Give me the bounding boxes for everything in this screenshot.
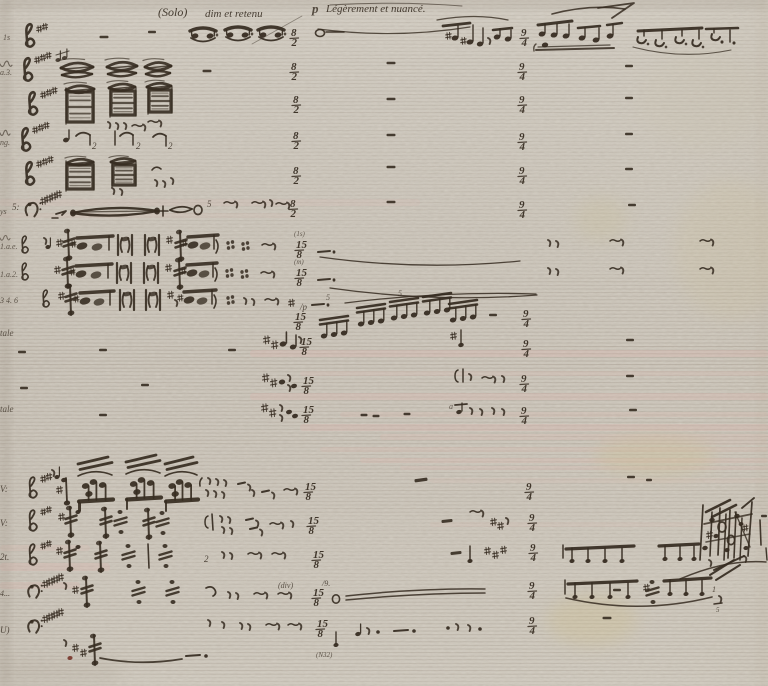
svg-text:p: p — [311, 1, 319, 16]
svg-text:5:: 5: — [12, 202, 20, 212]
svg-text:dim et retenu: dim et retenu — [205, 8, 263, 20]
svg-text:(m): (m) — [294, 258, 304, 266]
svg-text:3 4. 6: 3 4. 6 — [0, 296, 18, 305]
svg-text:ys: ys — [0, 207, 7, 216]
svg-text:2: 2 — [204, 554, 209, 564]
svg-text:2t.: 2t. — [0, 552, 9, 562]
svg-text:(N32): (N32) — [316, 651, 333, 659]
svg-text:tale: tale — [0, 328, 14, 338]
svg-text:(div): (div) — [278, 581, 293, 590]
svg-text:(Solo): (Solo) — [158, 5, 187, 19]
svg-text:a.3.: a.3. — [0, 68, 12, 77]
svg-text:V:: V: — [0, 518, 8, 528]
svg-text:2: 2 — [136, 141, 141, 151]
svg-text:5: 5 — [207, 199, 212, 209]
svg-text:1: 1 — [712, 585, 716, 594]
svg-text:1.a.2.: 1.a.2. — [0, 270, 18, 279]
svg-text:2: 2 — [92, 141, 97, 151]
svg-text:2: 2 — [168, 141, 173, 151]
svg-text:(1s): (1s) — [294, 230, 306, 238]
svg-text:U): U) — [0, 625, 10, 635]
svg-text:a: a — [449, 402, 453, 411]
svg-text:ng.: ng. — [0, 138, 10, 147]
svg-text:tale: tale — [0, 404, 14, 414]
svg-text:5: 5 — [326, 293, 330, 302]
svg-text:4...: 4... — [0, 589, 10, 598]
svg-text:V:: V: — [0, 484, 8, 494]
svg-text:1.a.e.: 1.a.e. — [0, 242, 18, 251]
svg-text:5: 5 — [716, 606, 720, 614]
svg-text:1s: 1s — [3, 33, 10, 42]
